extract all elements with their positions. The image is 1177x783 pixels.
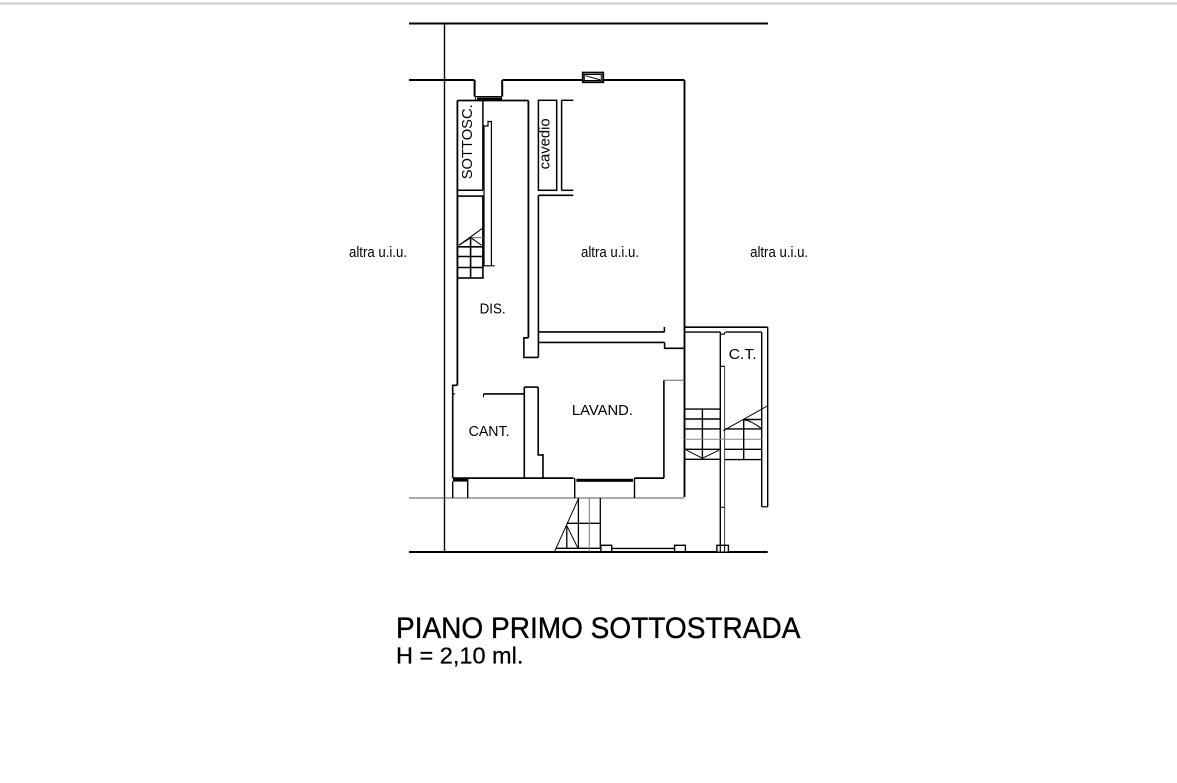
svg-text:CANT.: CANT. — [469, 424, 510, 440]
svg-text:PIANO PRIMO SOTTOSTRADA: PIANO PRIMO SOTTOSTRADA — [396, 612, 801, 645]
svg-text:DIS.: DIS. — [480, 302, 506, 318]
svg-text:C.T.: C.T. — [729, 347, 757, 363]
svg-text:LAVAND.: LAVAND. — [572, 403, 633, 419]
svg-text:H = 2,10 ml.: H = 2,10 ml. — [396, 643, 523, 669]
svg-text:cavedio: cavedio — [537, 118, 553, 169]
svg-text:altra u.i.u.: altra u.i.u. — [750, 245, 808, 261]
svg-text:SOTTOSC.: SOTTOSC. — [460, 104, 476, 179]
svg-text:altra u.i.u.: altra u.i.u. — [349, 245, 407, 261]
svg-text:altra u.i.u.: altra u.i.u. — [581, 245, 639, 261]
